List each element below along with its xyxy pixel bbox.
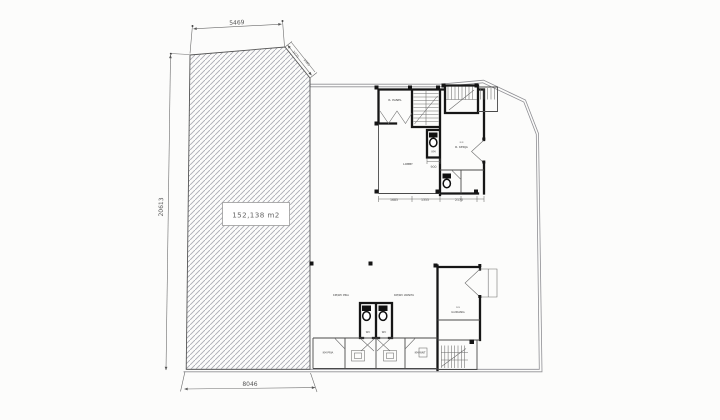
stall-label-right: WC bbox=[382, 330, 387, 334]
floor-plan-canvas: 152,138 m2 5469 20613 8046 2275 1985 bbox=[0, 0, 720, 420]
room-label-wc-right: KM/WC WANITA bbox=[394, 293, 414, 297]
stall-label-left: WC bbox=[366, 330, 371, 334]
toilet-icon bbox=[379, 306, 388, 321]
sub-dimension-value: 900 bbox=[430, 165, 436, 169]
room-label-panel: R. PANEL bbox=[388, 98, 402, 102]
room-label-office: R. KERJA bbox=[455, 145, 469, 149]
room-label-store-mark: ≈≈ bbox=[456, 306, 460, 309]
room-label-km-wanita: KM WNT bbox=[415, 351, 426, 355]
room-label-wc-small: KM bbox=[432, 150, 436, 154]
area-label: 152,138 m2 bbox=[232, 211, 280, 220]
dimension-point bbox=[192, 25, 194, 27]
room-label-wc-left: KM/WC PRIA bbox=[333, 293, 349, 297]
sub-dimension-value: 1685 bbox=[390, 198, 398, 202]
dimension-point bbox=[170, 53, 172, 55]
dimension-left-value: 20613 bbox=[158, 197, 165, 216]
canvas-background bbox=[0, 0, 720, 420]
room-label-km-pria: KM PRIA bbox=[323, 351, 334, 355]
room-label-lobby: LOBBY bbox=[403, 162, 413, 166]
dimension-top-value: 5469 bbox=[229, 19, 245, 27]
sub-dimension-value: 2170 bbox=[455, 198, 463, 202]
sub-dimension-value: 1355 bbox=[421, 198, 429, 202]
toilet-icon bbox=[362, 306, 371, 321]
dimension-bottom-value: 8046 bbox=[242, 381, 257, 388]
land-parcel: 152,138 m2 bbox=[186, 47, 310, 369]
room-label-store: GUDANG bbox=[451, 310, 465, 314]
floor-plan-page: 152,138 m2 5469 20613 8046 2275 1985 bbox=[0, 0, 720, 420]
room-label-office-mark: ≈≈ bbox=[459, 141, 463, 144]
dimension-point bbox=[282, 20, 284, 22]
toilet-icon bbox=[443, 174, 452, 188]
toilet-icon bbox=[429, 133, 438, 147]
